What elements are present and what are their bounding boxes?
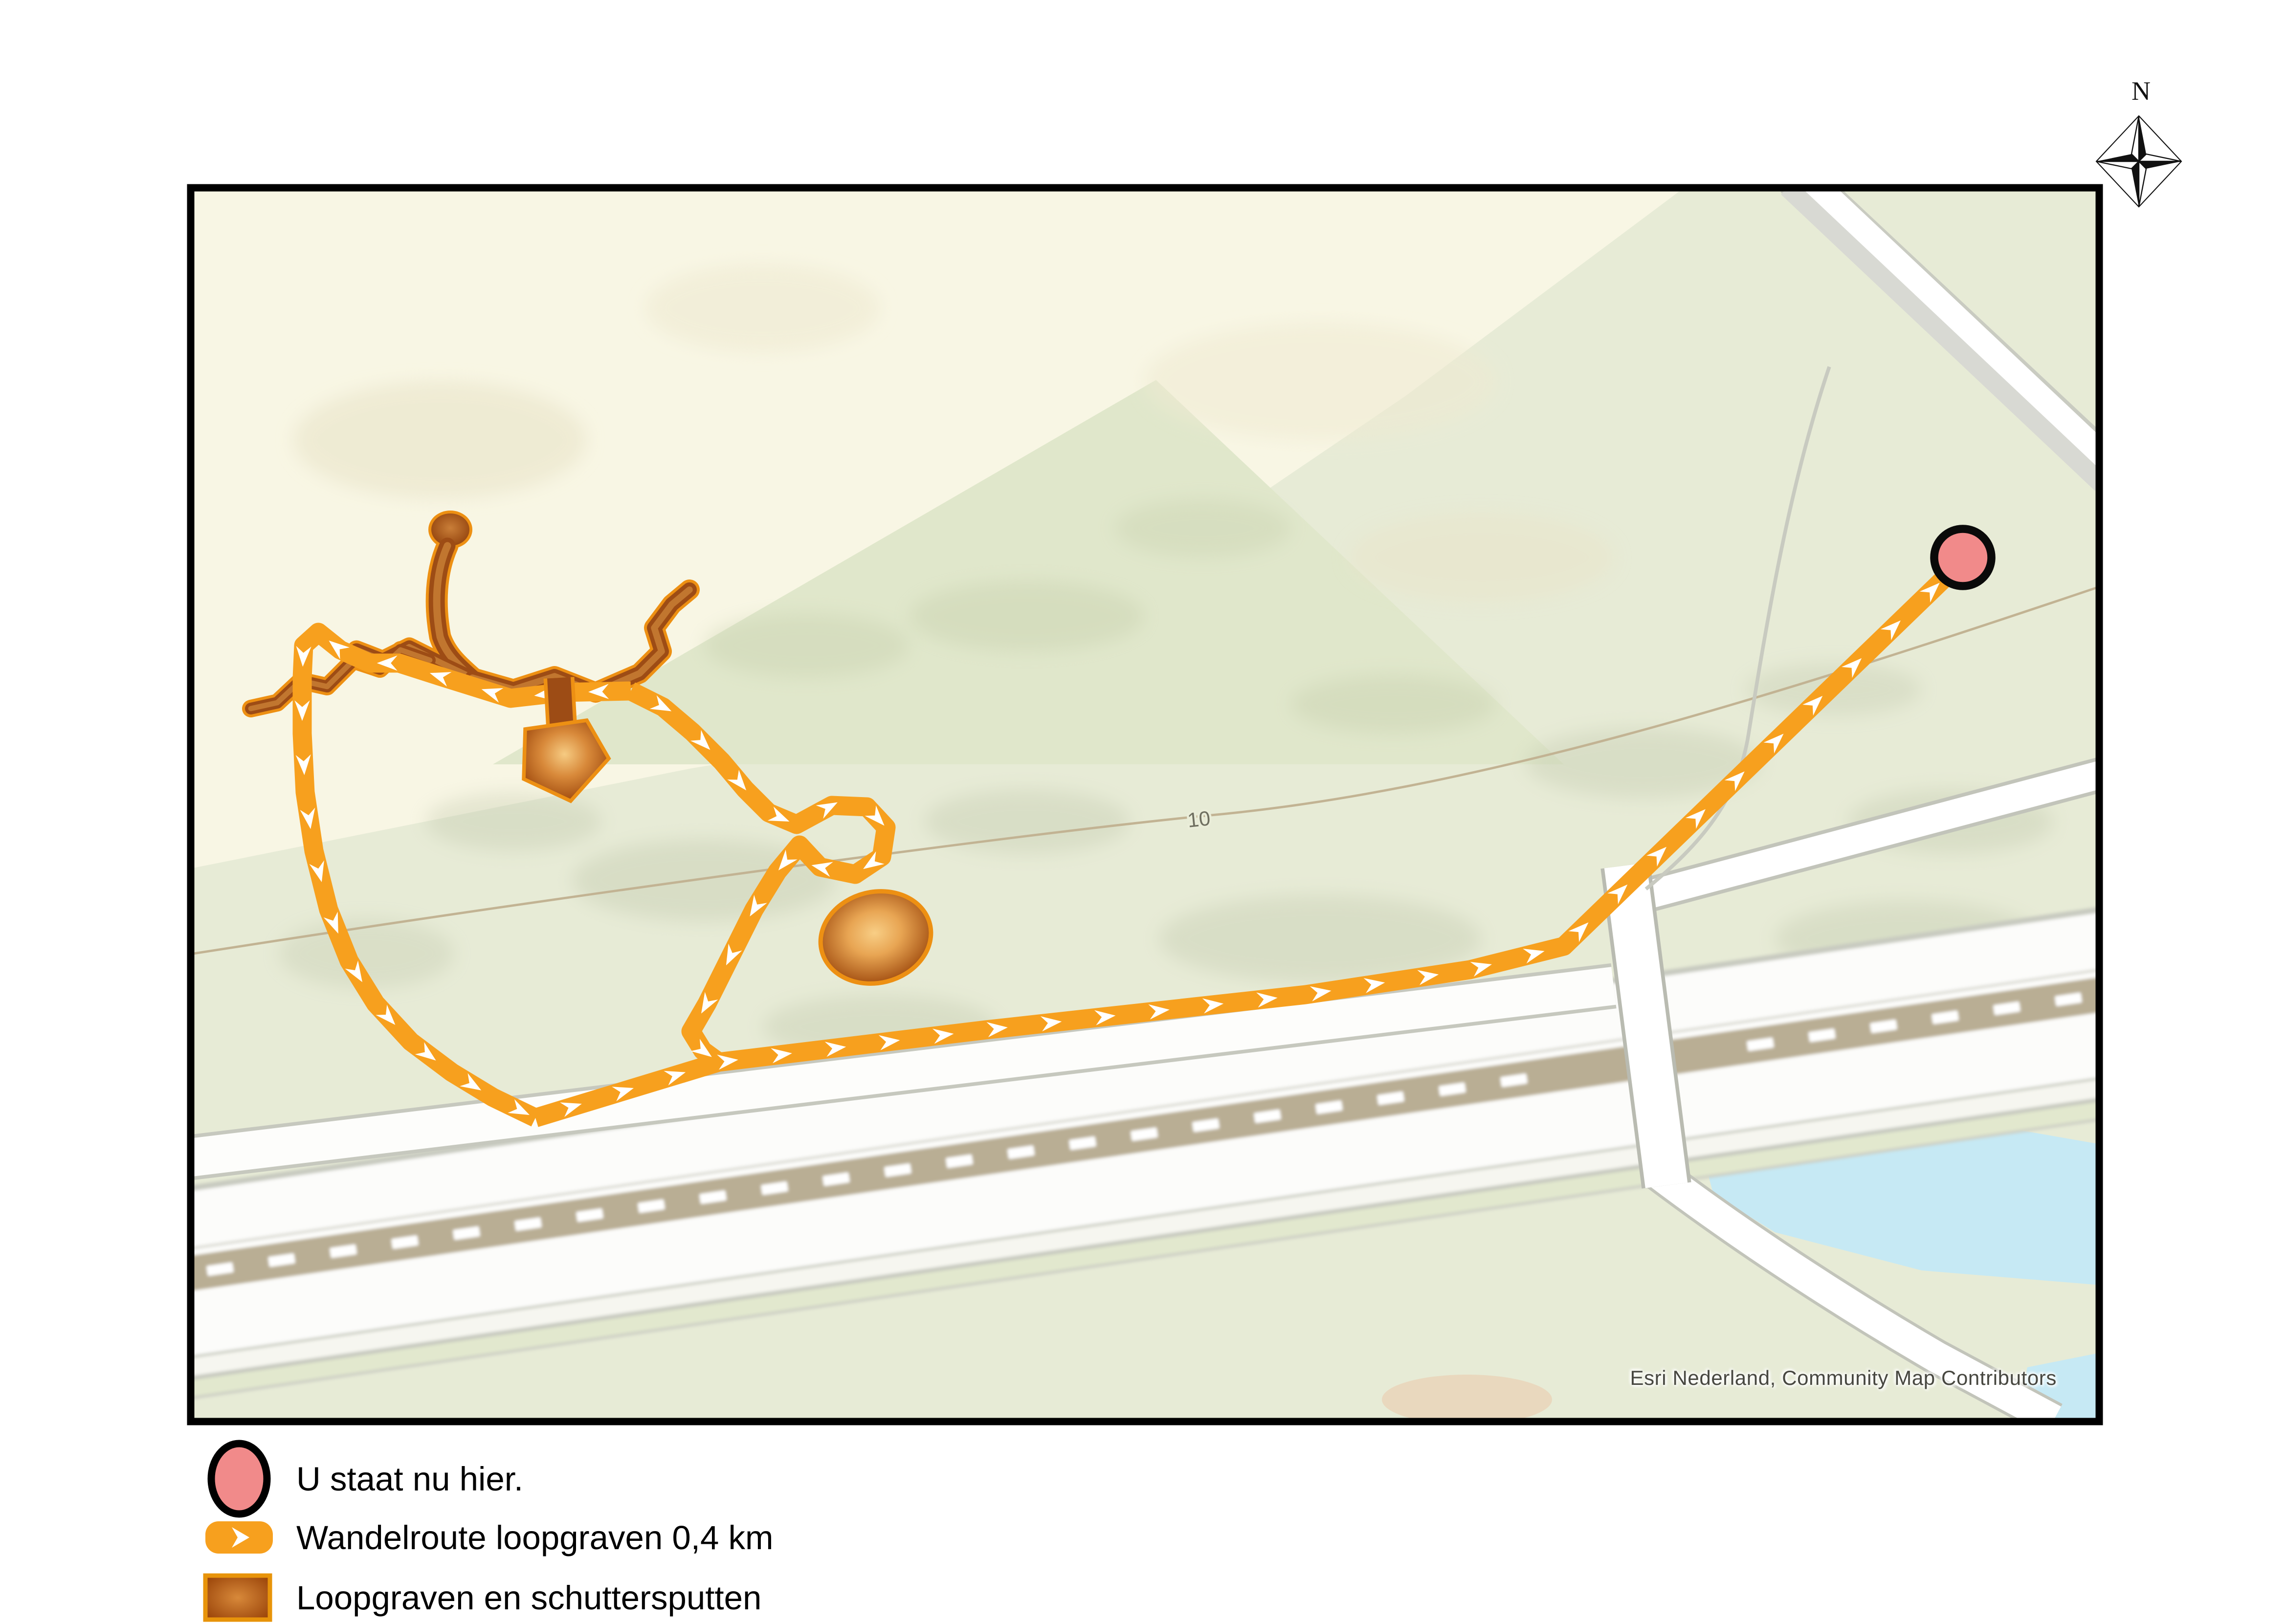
you-are-here-icon	[211, 1444, 267, 1514]
compass-rose: N	[2086, 73, 2192, 220]
legend-label: Wandelroute loopgraven 0,4 km	[296, 1518, 774, 1557]
route-swatch	[202, 1517, 285, 1558]
compass-north-label: N	[2132, 76, 2151, 106]
legend-item-wandelroute: Wandelroute loopgraven 0,4 km	[202, 1517, 774, 1558]
map-container: 10	[0, 0, 2287, 1617]
trench-swatch-square	[205, 1576, 270, 1620]
legend-item-you-are-here: U staat nu hier.	[202, 1438, 523, 1520]
you-are-here-marker	[1934, 529, 1992, 586]
legend-item-loopgraven: Loopgraven en schuttersputten	[202, 1573, 761, 1623]
you-are-here-swatch	[202, 1438, 285, 1520]
page: 10	[0, 0, 2287, 1617]
compass-star-icon	[2096, 116, 2181, 207]
trench-swatch	[202, 1573, 285, 1623]
attribution: Esri Nederland, Community Map Contributo…	[1630, 1366, 2057, 1389]
legend-label: Loopgraven en schuttersputten	[296, 1578, 761, 1618]
contour-label: 10	[1186, 806, 1211, 832]
legend-label: U staat nu hier.	[296, 1459, 523, 1499]
sand-patch	[1382, 1375, 1552, 1424]
